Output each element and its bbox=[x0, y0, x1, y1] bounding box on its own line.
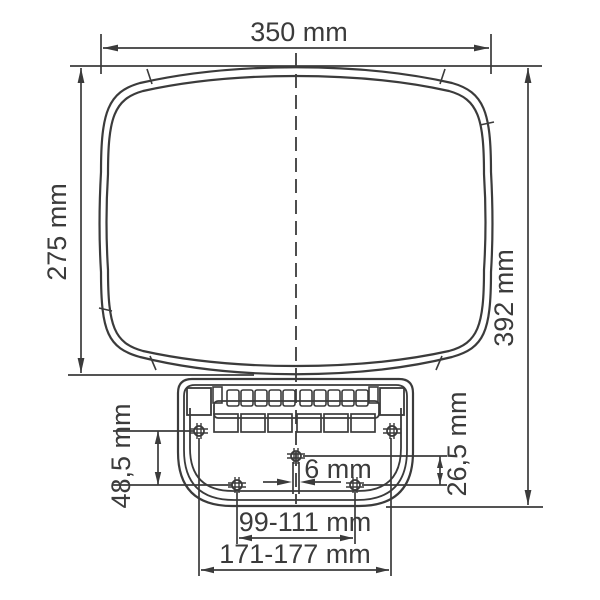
dimension-diagram: 350 mm 275 mm 392 mm 48,5 mm 26,5 mm bbox=[0, 0, 600, 600]
glass-height-label: 275 mm bbox=[42, 183, 72, 281]
drawing-canvas: 350 mm 275 mm 392 mm 48,5 mm 26,5 mm bbox=[0, 0, 600, 600]
overall-width-label: 350 mm bbox=[250, 17, 348, 47]
upper-holes-spacing-label: 171-177 mm bbox=[219, 539, 371, 569]
dimension-center-hole-offset: 6 mm bbox=[263, 454, 372, 494]
terminal-block-row bbox=[214, 414, 375, 432]
dimension-glass-height: 275 mm bbox=[42, 68, 254, 375]
bezel-joint-ticks bbox=[99, 69, 494, 370]
lower-holes-spacing-label: 99-111 mm bbox=[239, 507, 372, 537]
screw-upper-right bbox=[383, 423, 401, 439]
center-hole-offset-label: 6 mm bbox=[304, 454, 372, 484]
dimension-upper-to-lower-holes: 48,5 mm bbox=[106, 403, 232, 508]
upper-to-lower-holes-label: 48,5 mm bbox=[106, 403, 136, 508]
center-to-lower-holes-label: 26,5 mm bbox=[442, 391, 472, 496]
overall-height-label: 392 mm bbox=[489, 249, 519, 347]
